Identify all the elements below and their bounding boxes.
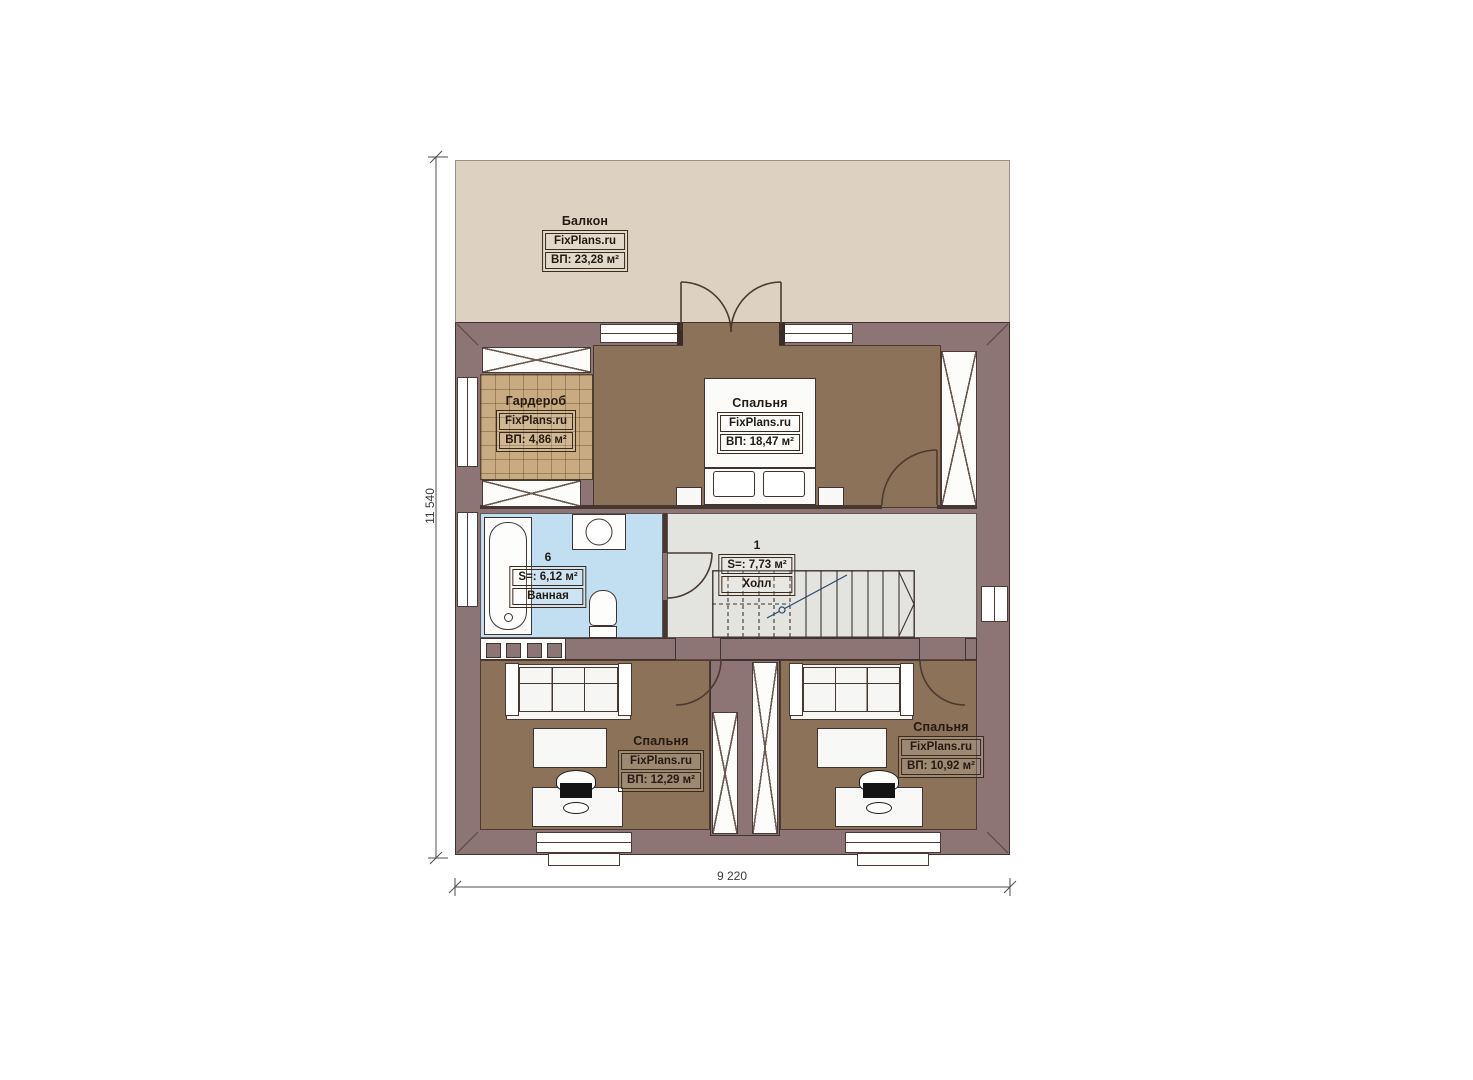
toilet-tank xyxy=(589,626,617,638)
bedroom-top-label: Спальня FixPlans.ru ВП: 18,47 м² xyxy=(717,396,803,454)
balcony-area-value: ВП: 23,28 м² xyxy=(545,252,625,269)
hall-area-value: S=: 7,73 м² xyxy=(721,557,792,574)
cabinet-door-4 xyxy=(547,643,562,658)
mid-wall-center xyxy=(720,638,920,660)
cabinet-door-1 xyxy=(486,643,501,658)
partition-bath-lower xyxy=(663,600,667,638)
mid-wall-right xyxy=(965,638,977,660)
wardrobe-area-value: ВП: 4,86 м² xyxy=(499,432,573,449)
bedroom-top-area-value: ВП: 18,47 м² xyxy=(720,434,800,451)
table-right xyxy=(817,728,887,768)
window-top-left xyxy=(600,324,680,343)
sofa-arm xyxy=(789,663,803,716)
sofa-arm xyxy=(618,663,632,716)
hall-number: 1 xyxy=(718,538,795,552)
window-top-right xyxy=(783,324,853,343)
closet-bedroom-top xyxy=(941,351,977,506)
closet-center-right xyxy=(752,662,778,834)
partition-bath-upper xyxy=(663,513,667,553)
balcony-label: Балкон FixPlans.ru ВП: 23,28 м² xyxy=(542,214,628,272)
window-bottom-right xyxy=(845,832,941,853)
bedroom-right-brand: FixPlans.ru xyxy=(901,739,981,756)
bedroom-top-label-frame: FixPlans.ru ВП: 18,47 м² xyxy=(717,412,803,454)
sink-basin xyxy=(586,519,613,546)
bedroom-top-name: Спальня xyxy=(717,396,803,410)
bedroom-left-name: Спальня xyxy=(618,734,704,748)
hall-name: Холл xyxy=(721,576,792,593)
bathroom-label: 6 S=: 6,12 м² Ванная xyxy=(509,550,586,608)
cabinet-door-2 xyxy=(506,643,521,658)
bedroom-right-name: Спальня xyxy=(898,720,984,734)
window-left-upper xyxy=(457,377,478,467)
bedroom-right-label-frame: FixPlans.ru ВП: 10,92 м² xyxy=(898,736,984,778)
sofa-arm xyxy=(505,663,519,716)
sofa-arm xyxy=(900,663,914,716)
bedroom-left-area-value: ВП: 12,29 м² xyxy=(621,772,701,789)
sofa-cushions xyxy=(519,667,618,712)
hall-label: 1 S=: 7,73 м² Холл xyxy=(718,538,795,596)
sofa-left xyxy=(506,664,631,720)
bathroom-name: Ванная xyxy=(512,588,583,605)
wardrobe-brand: FixPlans.ru xyxy=(499,413,573,430)
cabinet-door-3 xyxy=(527,643,542,658)
bedroom-left-label-frame: FixPlans.ru ВП: 12,29 м² xyxy=(618,750,704,792)
sofa-cushions xyxy=(803,667,900,712)
pillow-left xyxy=(713,471,755,497)
table-left xyxy=(533,728,607,768)
dimension-width: 9 220 xyxy=(682,869,782,883)
bed-blanket-line xyxy=(705,467,815,469)
wardrobe-label: Гардероб FixPlans.ru ВП: 4,86 м² xyxy=(496,394,576,452)
closet-bottom xyxy=(482,480,581,507)
balcony-area xyxy=(455,160,1010,323)
chair-base xyxy=(866,802,892,814)
balcony-door-post-right xyxy=(779,322,785,345)
bedroom-left-label: Спальня FixPlans.ru ВП: 12,29 м² xyxy=(618,734,704,792)
chair-seat xyxy=(863,783,895,798)
closet-center-left xyxy=(712,712,738,834)
balcony-brand: FixPlans.ru xyxy=(545,233,625,250)
bathroom-area-value: S=: 6,12 м² xyxy=(512,569,583,586)
desk-chair-left xyxy=(553,770,599,816)
bath-cabinet-row xyxy=(480,638,566,660)
wardrobe-name: Гардероб xyxy=(496,394,576,408)
bedroom-right-label: Спальня FixPlans.ru ВП: 10,92 м² xyxy=(898,720,984,778)
window-bottom-left xyxy=(536,832,632,853)
bathroom-number: 6 xyxy=(509,550,586,564)
balcony-door-threshold xyxy=(683,323,779,347)
nightstand-right xyxy=(818,487,844,506)
bathtub-drain xyxy=(504,613,513,622)
dimension-height: 11 540 xyxy=(423,474,437,538)
closet-top xyxy=(482,347,591,373)
wardrobe-label-frame: FixPlans.ru ВП: 4,86 м² xyxy=(496,410,576,452)
floor-plan-canvas: Балкон FixPlans.ru ВП: 23,28 м² Гардероб… xyxy=(0,0,1473,1080)
window-right xyxy=(981,586,1008,622)
bathroom-label-frame: S=: 6,12 м² Ванная xyxy=(509,566,586,608)
toilet-bowl xyxy=(589,590,617,626)
hall-label-frame: S=: 7,73 м² Холл xyxy=(718,554,795,596)
balcony-label-frame: FixPlans.ru ВП: 23,28 м² xyxy=(542,230,628,272)
balcony-name: Балкон xyxy=(542,214,628,228)
balcony-door-post-left xyxy=(677,322,683,345)
chair-base xyxy=(563,802,589,814)
bedroom-right-area-value: ВП: 10,92 м² xyxy=(901,758,981,775)
bedroom-top-brand: FixPlans.ru xyxy=(720,415,800,432)
windowsill-bottom-left xyxy=(548,853,620,866)
sink-unit xyxy=(572,514,626,550)
sofa-right xyxy=(790,664,913,720)
windowsill-bottom-right xyxy=(857,853,929,866)
desk-chair-right xyxy=(856,770,902,816)
bedroom-left-brand: FixPlans.ru xyxy=(621,753,701,770)
nightstand-left xyxy=(676,487,702,506)
window-left-lower xyxy=(457,512,478,607)
chair-seat xyxy=(560,783,592,798)
pillow-right xyxy=(763,471,805,497)
